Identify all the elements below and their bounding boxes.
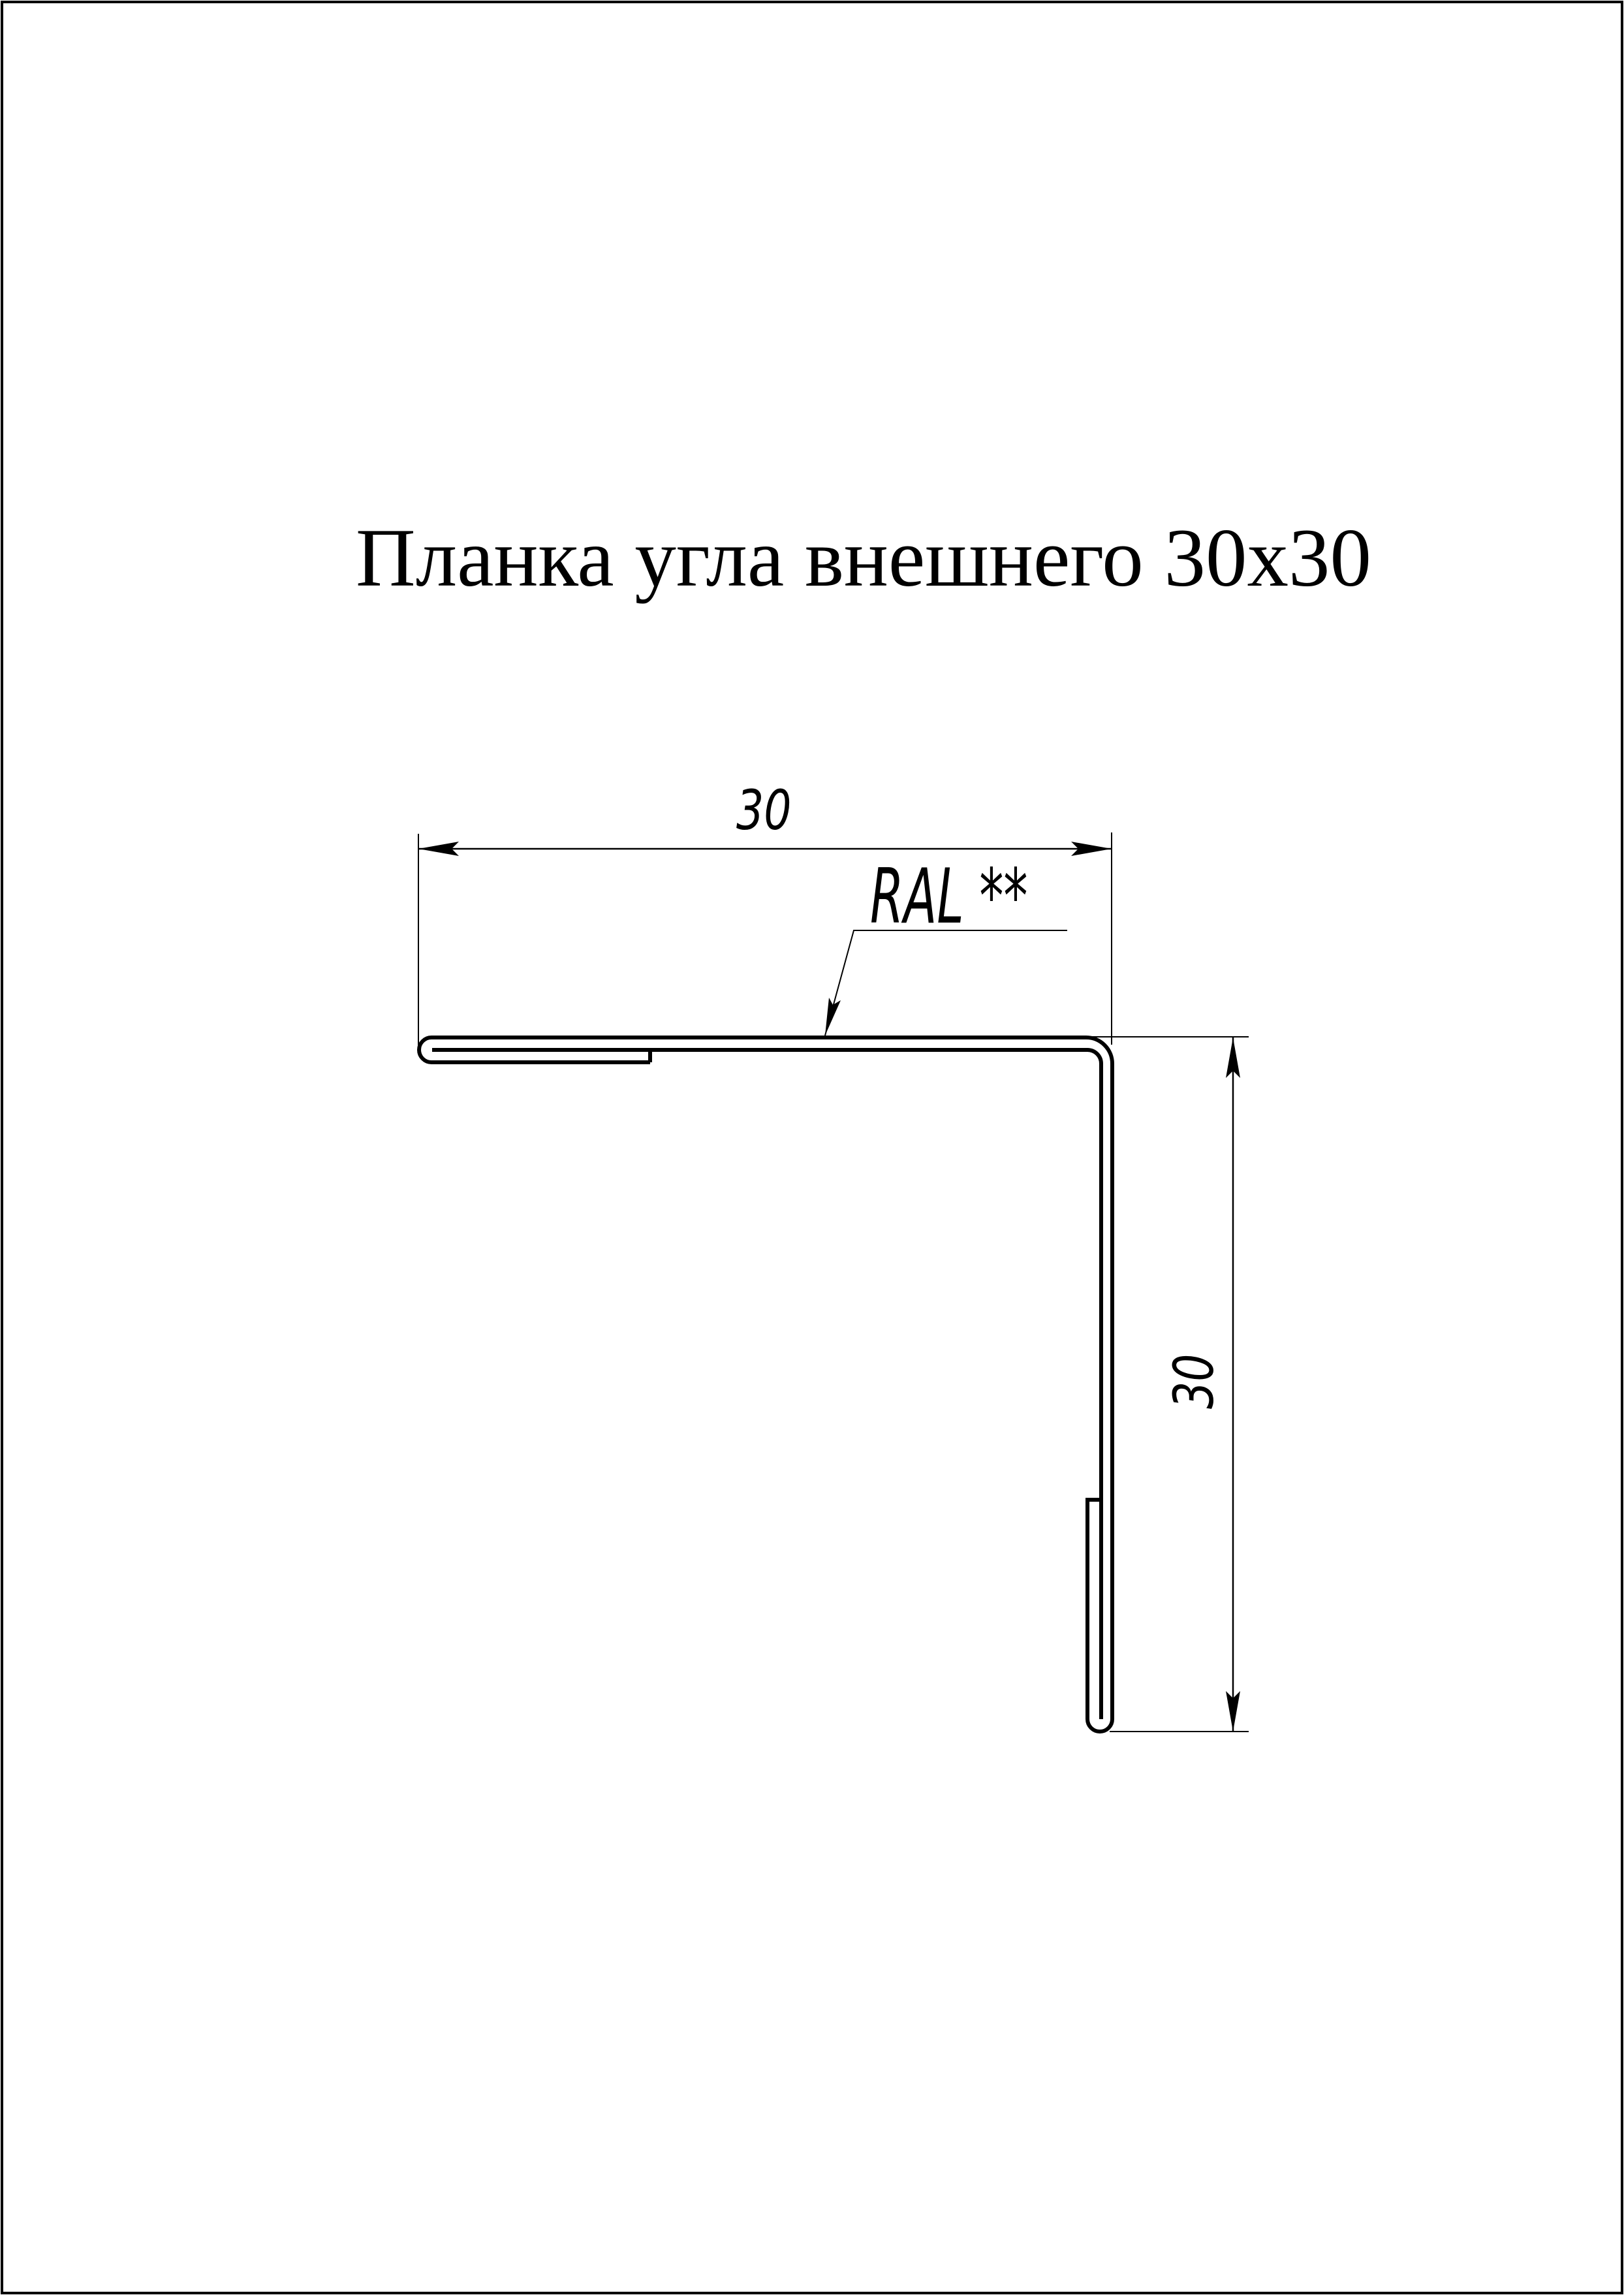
drawing-sheet: Планка угла внешнего 30х30 30 30 [0,0,1624,2295]
ral-leader-line [825,930,1067,1036]
width-dimension-value: 30 [736,778,791,842]
ral-leader-arrow [825,998,841,1036]
height-dimension-value: 30 [1162,1354,1226,1409]
profile-outer-contour [419,1037,1112,1732]
profile-inner-surface [432,1050,1101,1719]
corner-flashing-drawing: 30 30 RAL ** [0,0,1624,2295]
coating-ral-label: RAL ** [870,853,1028,941]
